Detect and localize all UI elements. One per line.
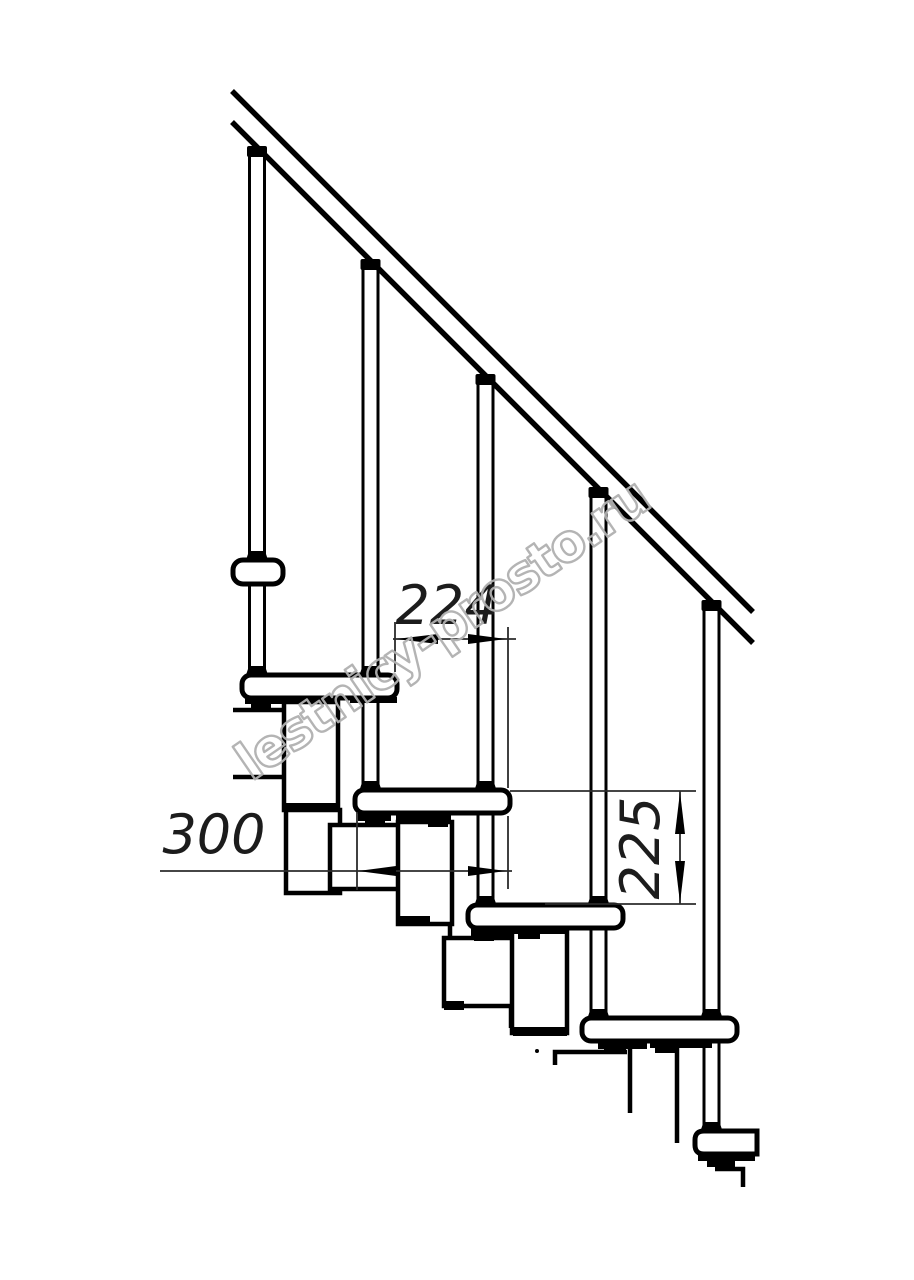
arrowhead-down xyxy=(675,861,685,903)
collar xyxy=(475,896,497,905)
tread-2 xyxy=(355,790,510,813)
under-tab xyxy=(474,933,494,941)
baluster-4 xyxy=(591,496,606,1018)
under-tab xyxy=(707,1159,735,1167)
baluster-cap xyxy=(476,374,496,385)
under-tab xyxy=(428,820,448,827)
tread-4 xyxy=(582,1018,737,1041)
under-tab xyxy=(251,702,271,710)
baluster-5 xyxy=(704,609,719,1131)
module3-foot xyxy=(444,1001,464,1010)
stray-dot xyxy=(535,1049,539,1053)
module3-left-box xyxy=(444,938,515,1006)
baluster-1 xyxy=(250,155,265,675)
baluster-3 xyxy=(478,383,493,905)
collar xyxy=(360,781,382,790)
baluster-cap xyxy=(702,600,722,611)
collar xyxy=(701,1122,723,1131)
baluster-cap xyxy=(361,259,381,270)
collar xyxy=(246,551,268,560)
under-tab xyxy=(518,931,540,939)
collar xyxy=(475,781,497,790)
drawing-canvas: 224 300 225 lestnicy-prosto.ru xyxy=(0,0,914,1280)
tread-5 xyxy=(695,1131,757,1154)
under-tab xyxy=(655,1045,677,1053)
dimension-value-tread-depth: 300 xyxy=(162,803,265,866)
handrail-bracket xyxy=(233,560,283,584)
dimension-value-riser-height: 225 xyxy=(609,796,672,899)
tread-3 xyxy=(468,905,623,928)
under-tab xyxy=(604,1046,626,1054)
module2-left-box xyxy=(330,825,403,889)
baluster-cap xyxy=(247,146,267,157)
collar xyxy=(588,1009,610,1018)
collar xyxy=(246,666,268,675)
module3-column xyxy=(512,930,567,1033)
arrowhead-up xyxy=(675,792,685,834)
module2-foot xyxy=(398,916,430,925)
staircase-drawing: 224 300 225 lestnicy-prosto.ru xyxy=(0,0,914,1280)
module3-bottom xyxy=(513,1027,567,1036)
module2-column xyxy=(398,822,452,924)
under-tab xyxy=(365,819,385,826)
module5-step-line xyxy=(715,1169,743,1187)
collar xyxy=(701,1009,723,1018)
